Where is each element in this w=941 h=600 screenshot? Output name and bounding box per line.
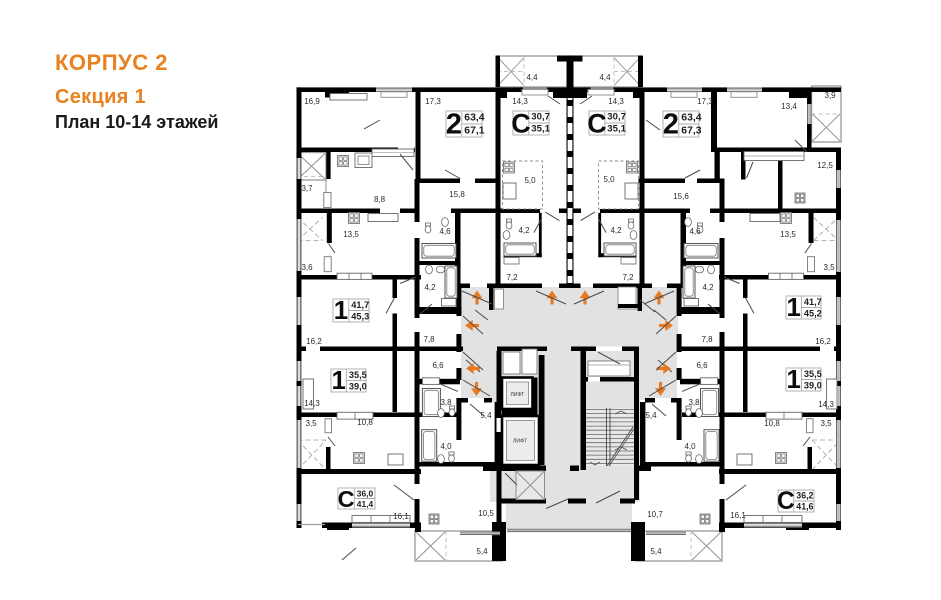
svg-text:7,2: 7,2 (622, 273, 634, 282)
svg-text:3,5: 3,5 (823, 263, 835, 272)
svg-text:35,5: 35,5 (349, 370, 367, 380)
svg-text:10,5: 10,5 (478, 509, 494, 518)
svg-text:10,8: 10,8 (357, 418, 373, 427)
svg-text:Секция 1: Секция 1 (55, 86, 146, 108)
svg-text:3,6: 3,6 (301, 263, 313, 272)
svg-text:16,9: 16,9 (304, 97, 320, 106)
svg-text:План 10-14 этажей: План 10-14 этажей (55, 112, 218, 132)
svg-text:5,0: 5,0 (603, 175, 615, 184)
svg-text:45,3: 45,3 (351, 312, 369, 322)
svg-text:4,2: 4,2 (702, 283, 714, 292)
svg-text:С: С (511, 109, 530, 139)
svg-text:30,7: 30,7 (607, 112, 626, 123)
svg-text:2: 2 (446, 109, 462, 141)
svg-text:4,2: 4,2 (424, 283, 436, 292)
svg-text:1: 1 (787, 366, 801, 394)
svg-text:14,3: 14,3 (818, 400, 834, 409)
svg-text:8,8: 8,8 (374, 195, 386, 204)
svg-text:С: С (777, 488, 795, 515)
svg-text:7,8: 7,8 (701, 335, 713, 344)
svg-text:15,8: 15,8 (449, 190, 465, 199)
svg-text:3,9: 3,9 (824, 91, 836, 100)
svg-text:3,7: 3,7 (301, 184, 313, 193)
svg-text:7,8: 7,8 (423, 335, 435, 344)
svg-text:36,2: 36,2 (796, 491, 813, 501)
svg-text:5,4: 5,4 (645, 411, 657, 420)
svg-text:4,2: 4,2 (610, 226, 622, 235)
svg-text:14,3: 14,3 (512, 97, 528, 106)
svg-text:С: С (338, 486, 355, 512)
svg-text:2: 2 (663, 109, 679, 141)
svg-text:17,3: 17,3 (425, 97, 441, 106)
svg-text:41,7: 41,7 (351, 300, 369, 310)
svg-text:4,2: 4,2 (518, 226, 530, 235)
svg-text:14,3: 14,3 (608, 97, 624, 106)
svg-text:4,0: 4,0 (440, 442, 452, 451)
svg-text:4,6: 4,6 (439, 227, 451, 236)
svg-text:13,4: 13,4 (781, 102, 797, 111)
svg-text:4,4: 4,4 (526, 73, 538, 82)
svg-text:35,5: 35,5 (804, 369, 822, 379)
svg-text:10,7: 10,7 (647, 510, 663, 519)
svg-text:45,2: 45,2 (804, 309, 822, 319)
svg-text:ЛИФТ: ЛИФТ (510, 392, 525, 398)
svg-text:6,6: 6,6 (696, 361, 708, 370)
svg-text:5,4: 5,4 (650, 547, 662, 556)
svg-text:41,6: 41,6 (796, 502, 813, 512)
svg-text:15,6: 15,6 (673, 192, 689, 201)
svg-text:3,5: 3,5 (305, 419, 317, 428)
svg-text:4,0: 4,0 (684, 442, 696, 451)
svg-text:6,6: 6,6 (432, 361, 444, 370)
svg-text:17,3: 17,3 (697, 97, 713, 106)
svg-text:10,8: 10,8 (764, 419, 780, 428)
svg-text:67,3: 67,3 (681, 125, 701, 136)
svg-text:КОРПУС 2: КОРПУС 2 (55, 50, 168, 75)
svg-text:41,7: 41,7 (804, 297, 822, 307)
svg-text:1: 1 (332, 367, 346, 395)
svg-text:39,0: 39,0 (349, 382, 367, 392)
svg-text:16,2: 16,2 (306, 337, 322, 346)
svg-text:1: 1 (787, 294, 801, 322)
svg-text:67,1: 67,1 (464, 125, 484, 136)
svg-text:ЛИФТ: ЛИФТ (513, 439, 528, 445)
svg-text:35,1: 35,1 (531, 124, 550, 135)
svg-text:13,5: 13,5 (343, 230, 359, 239)
svg-text:3,5: 3,5 (820, 419, 832, 428)
svg-text:С: С (587, 109, 606, 139)
svg-text:63,4: 63,4 (681, 112, 701, 123)
svg-text:16,1: 16,1 (730, 511, 746, 520)
svg-text:12,5: 12,5 (817, 161, 833, 170)
svg-text:4,4: 4,4 (599, 73, 611, 82)
svg-text:5,4: 5,4 (480, 411, 492, 420)
svg-text:63,4: 63,4 (464, 112, 484, 123)
svg-text:16,1: 16,1 (393, 512, 409, 521)
svg-text:3,8: 3,8 (688, 398, 700, 407)
svg-text:39,0: 39,0 (804, 381, 822, 391)
svg-text:30,7: 30,7 (531, 112, 550, 123)
svg-text:5,0: 5,0 (524, 176, 536, 185)
svg-text:14,3: 14,3 (304, 399, 320, 408)
svg-text:7,2: 7,2 (506, 273, 518, 282)
svg-text:13,5: 13,5 (780, 230, 796, 239)
svg-text:1: 1 (334, 297, 348, 325)
svg-text:41,4: 41,4 (357, 499, 374, 509)
svg-text:4,6: 4,6 (689, 227, 701, 236)
svg-text:5,4: 5,4 (476, 547, 488, 556)
svg-text:3,8: 3,8 (440, 398, 452, 407)
svg-text:36,0: 36,0 (357, 489, 374, 499)
svg-text:35,1: 35,1 (607, 124, 626, 135)
svg-text:16,2: 16,2 (815, 337, 831, 346)
